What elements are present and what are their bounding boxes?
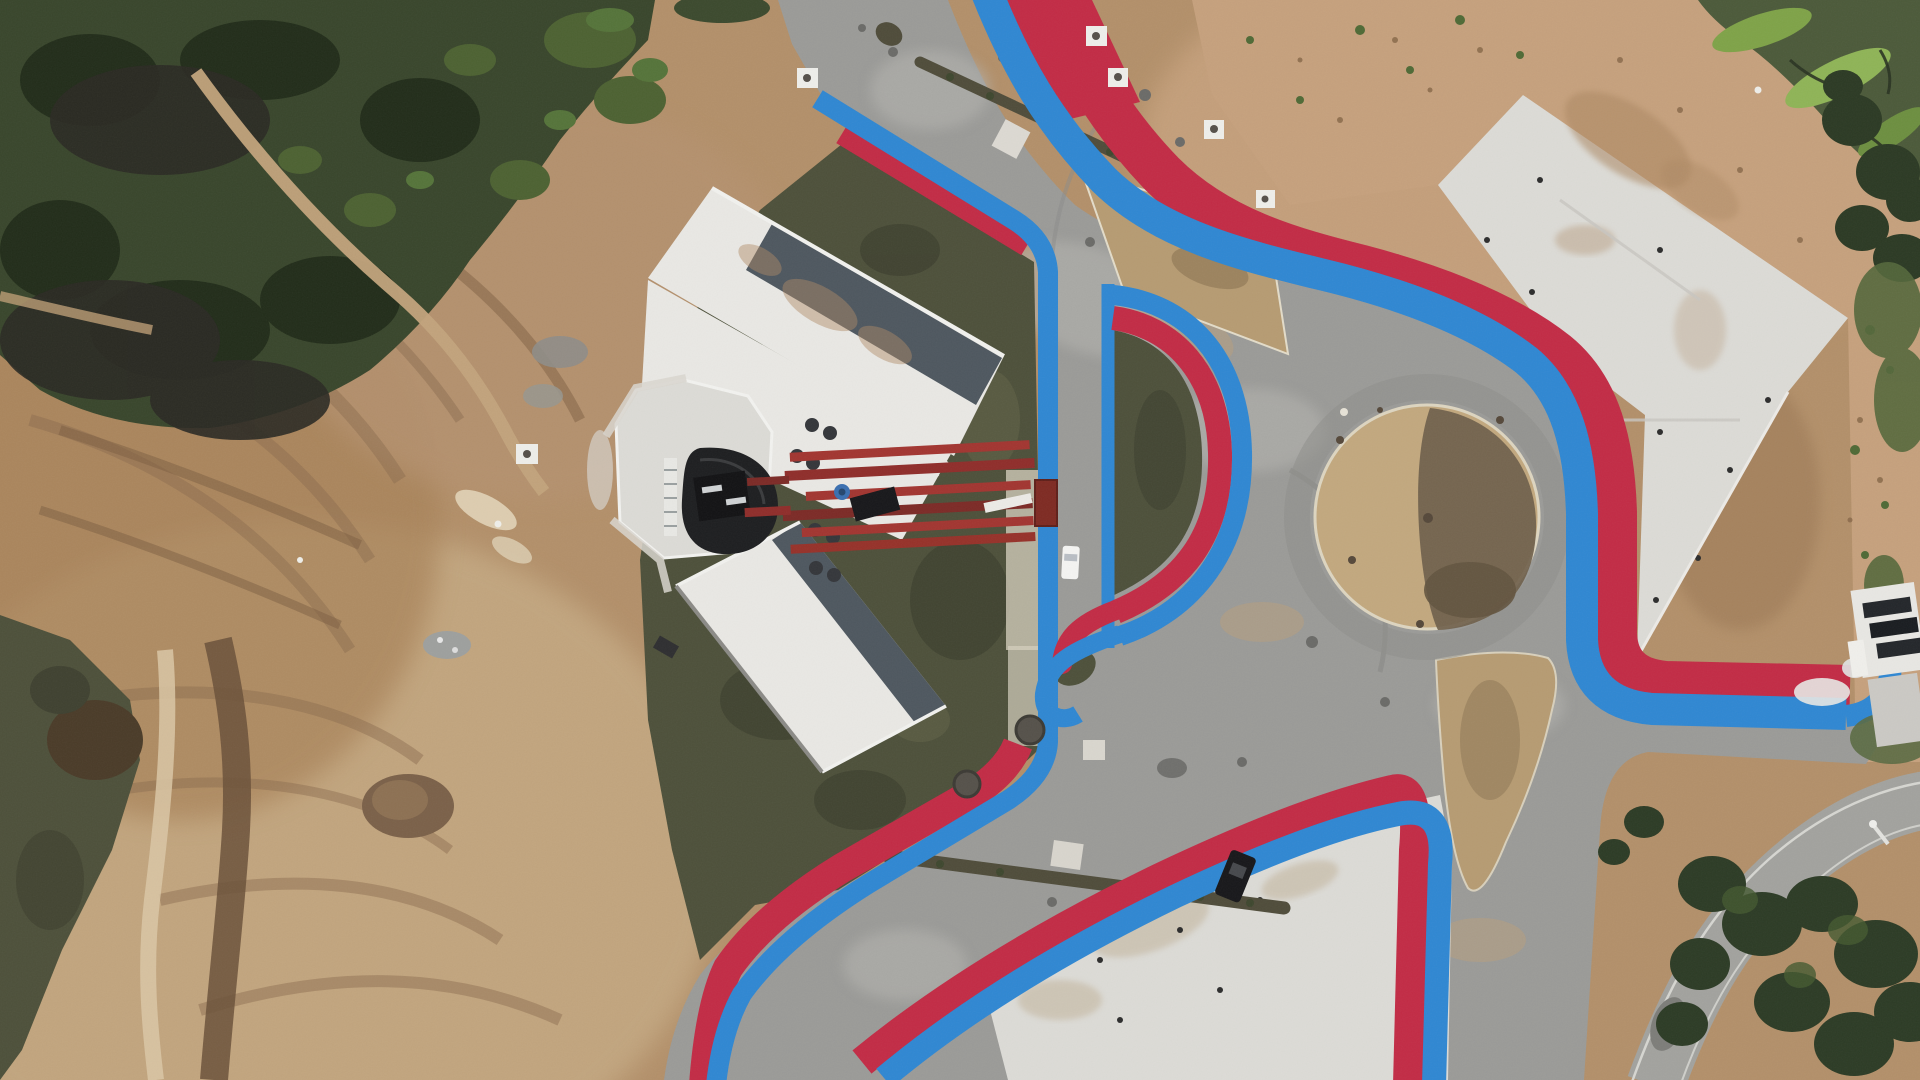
aerial-photo-canvas	[0, 0, 1920, 1080]
photo-grain	[0, 0, 1920, 1080]
aerial-photo	[0, 0, 1920, 1080]
